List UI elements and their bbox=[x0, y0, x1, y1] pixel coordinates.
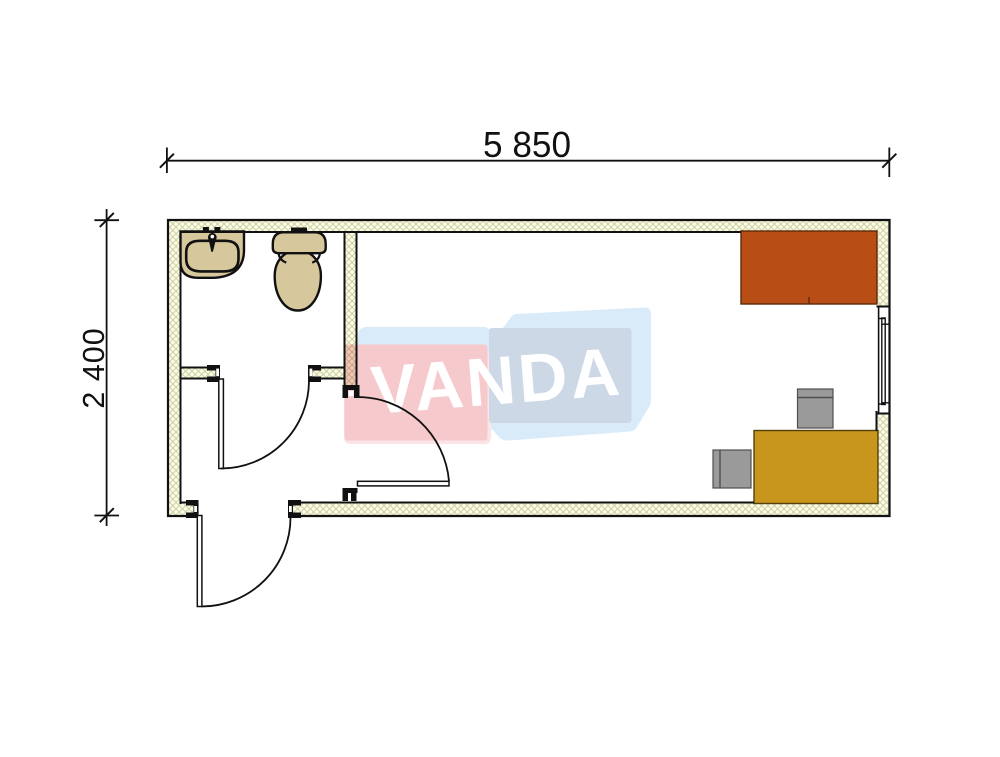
svg-text:5 850: 5 850 bbox=[483, 124, 571, 165]
svg-text:2 400: 2 400 bbox=[77, 327, 111, 408]
